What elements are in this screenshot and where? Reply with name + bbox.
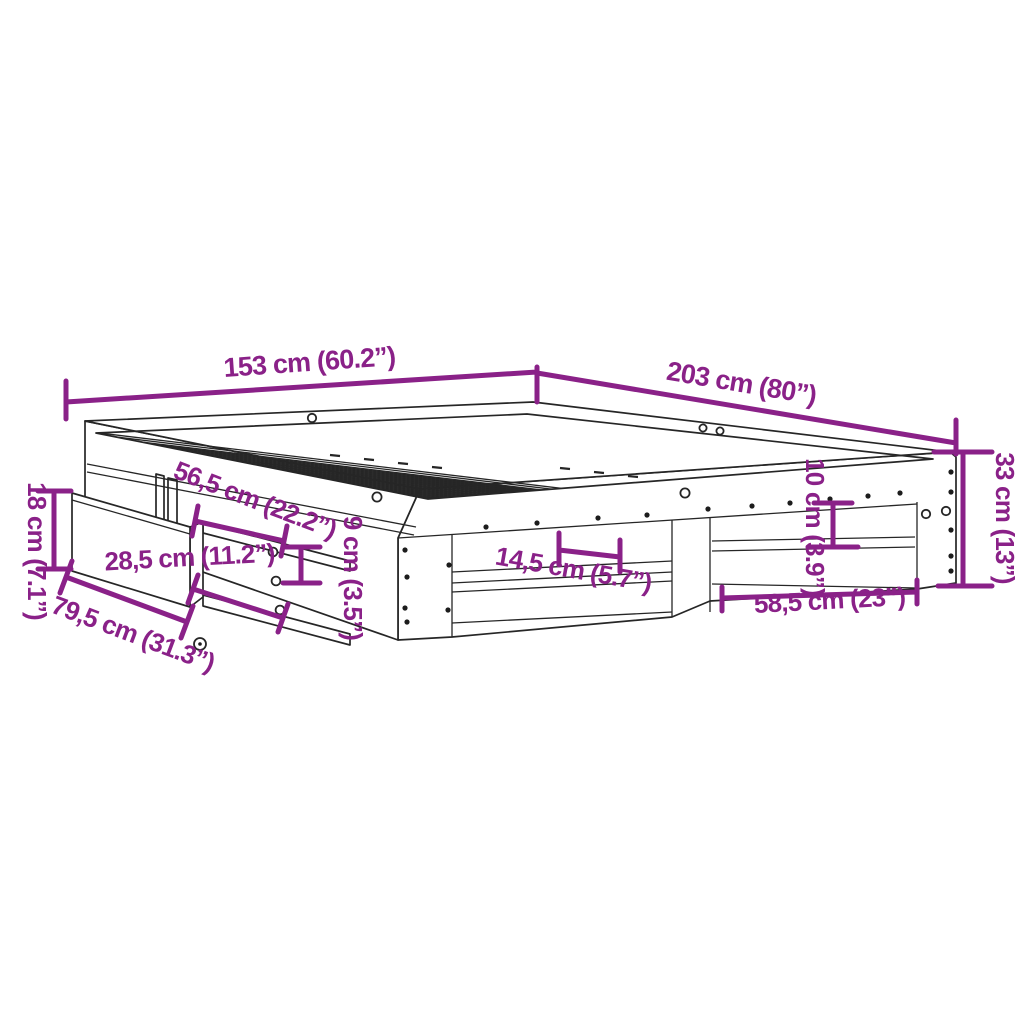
dim-side-rail-height-label: 9 cm (3.5”) bbox=[338, 516, 368, 640]
headboard-rail-hole bbox=[308, 414, 316, 422]
dim-top-length-label: 203 cm (80”) bbox=[665, 356, 819, 411]
dim-left-height-label: 18 cm (7.1”) bbox=[22, 482, 52, 620]
dim-right-height-label: 33 cm (13”) bbox=[990, 452, 1020, 584]
dim-top-width-label: 153 cm (60.2”) bbox=[223, 341, 397, 383]
product-dimension-diagram: 153 cm (60.2”) 203 cm (80”) 33 cm (13”) … bbox=[0, 0, 1024, 1024]
side-rail-hole-2 bbox=[716, 427, 723, 434]
diagram-canvas: 153 cm (60.2”) 203 cm (80”) 33 cm (13”) … bbox=[0, 0, 1024, 1024]
dim-shelf-opening-height-label: 10 cm (3.9”) bbox=[800, 458, 830, 596]
side-rail-hole-1 bbox=[699, 424, 706, 431]
